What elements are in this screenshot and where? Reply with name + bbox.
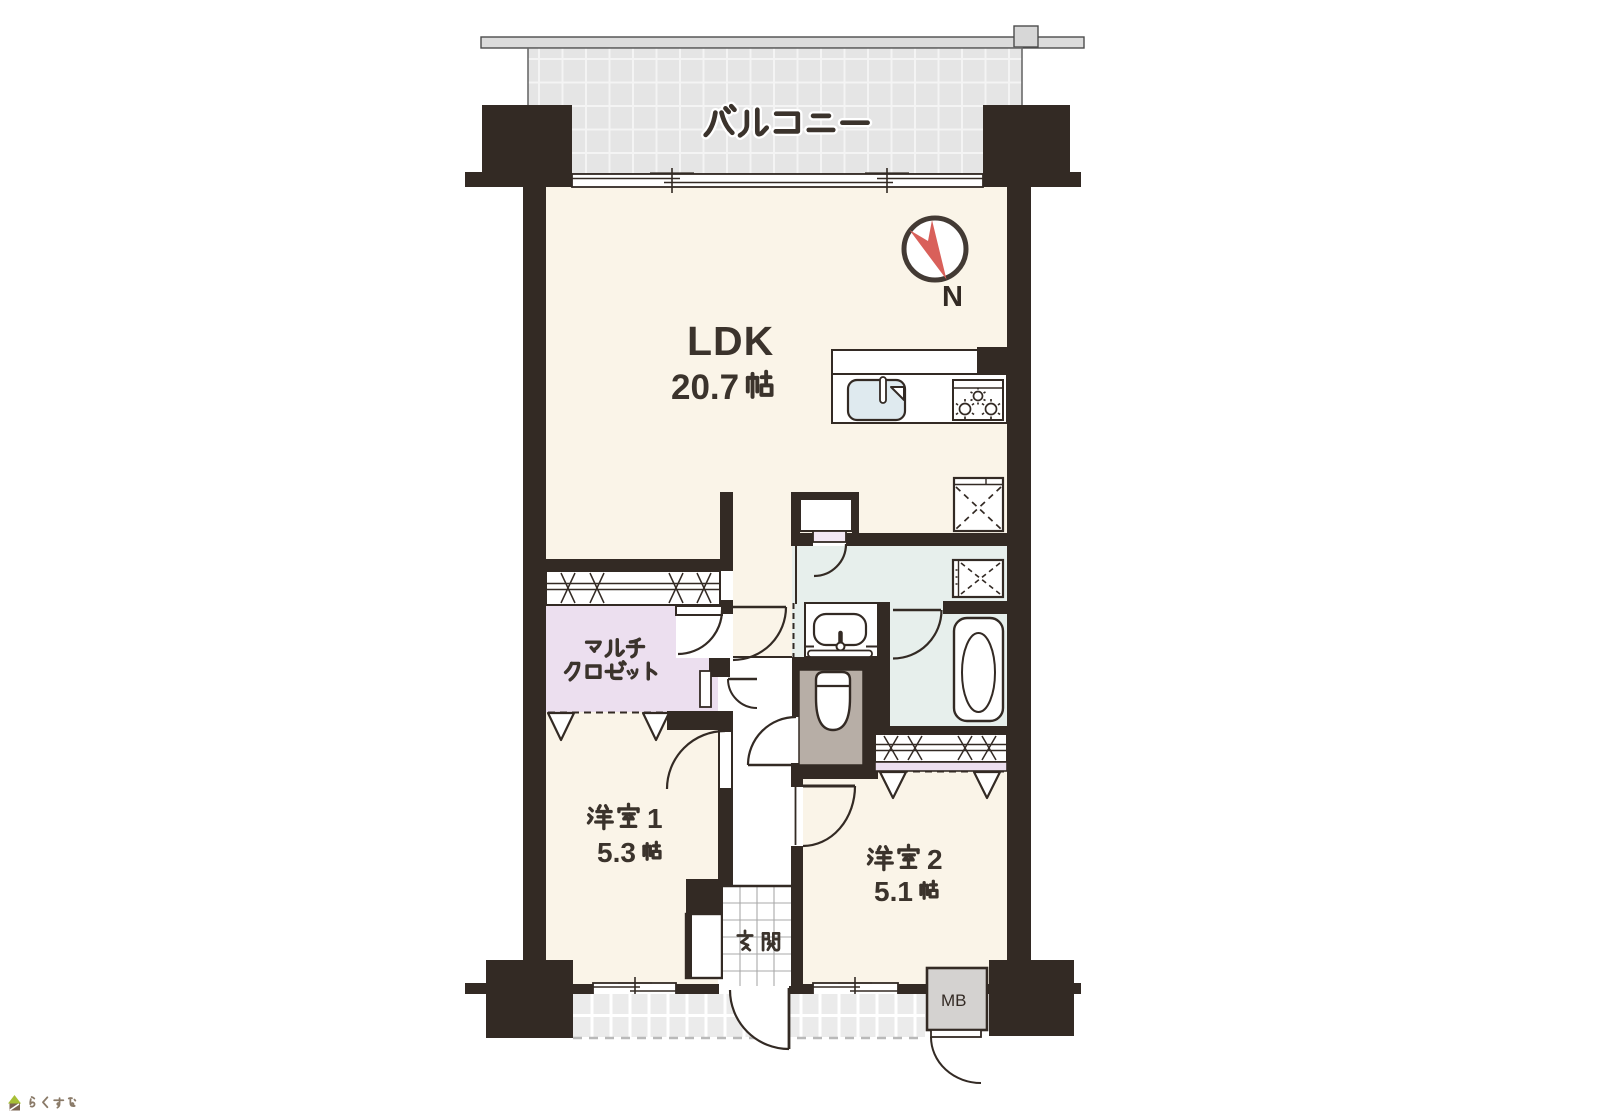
svg-text:5.1: 5.1: [874, 876, 913, 907]
svg-text:5.3: 5.3: [597, 837, 636, 868]
svg-text:2: 2: [927, 844, 943, 875]
svg-text:N: N: [942, 281, 963, 313]
svg-text:MB: MB: [941, 991, 967, 1010]
svg-text:1: 1: [647, 803, 663, 834]
svg-text:20.7: 20.7: [671, 368, 739, 407]
svg-text:LDK: LDK: [687, 318, 774, 364]
